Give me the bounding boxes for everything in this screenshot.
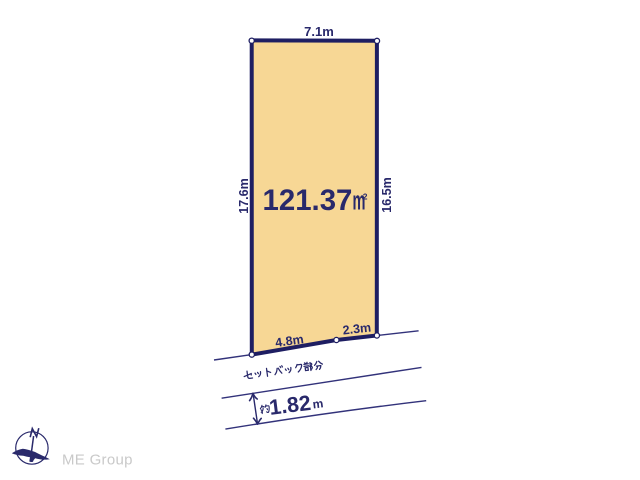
svg-text:121.37: 121.37 [263,184,353,217]
svg-text:16.5m: 16.5m [380,177,394,212]
svg-text:17.6m: 17.6m [237,178,251,213]
svg-text:m: m [312,396,324,411]
svg-text:2.3m: 2.3m [342,321,372,338]
svg-text:2: 2 [363,192,368,202]
svg-text:1.82: 1.82 [268,391,313,420]
svg-text:7.1m: 7.1m [304,24,334,39]
svg-text:ME Group: ME Group [62,451,133,468]
